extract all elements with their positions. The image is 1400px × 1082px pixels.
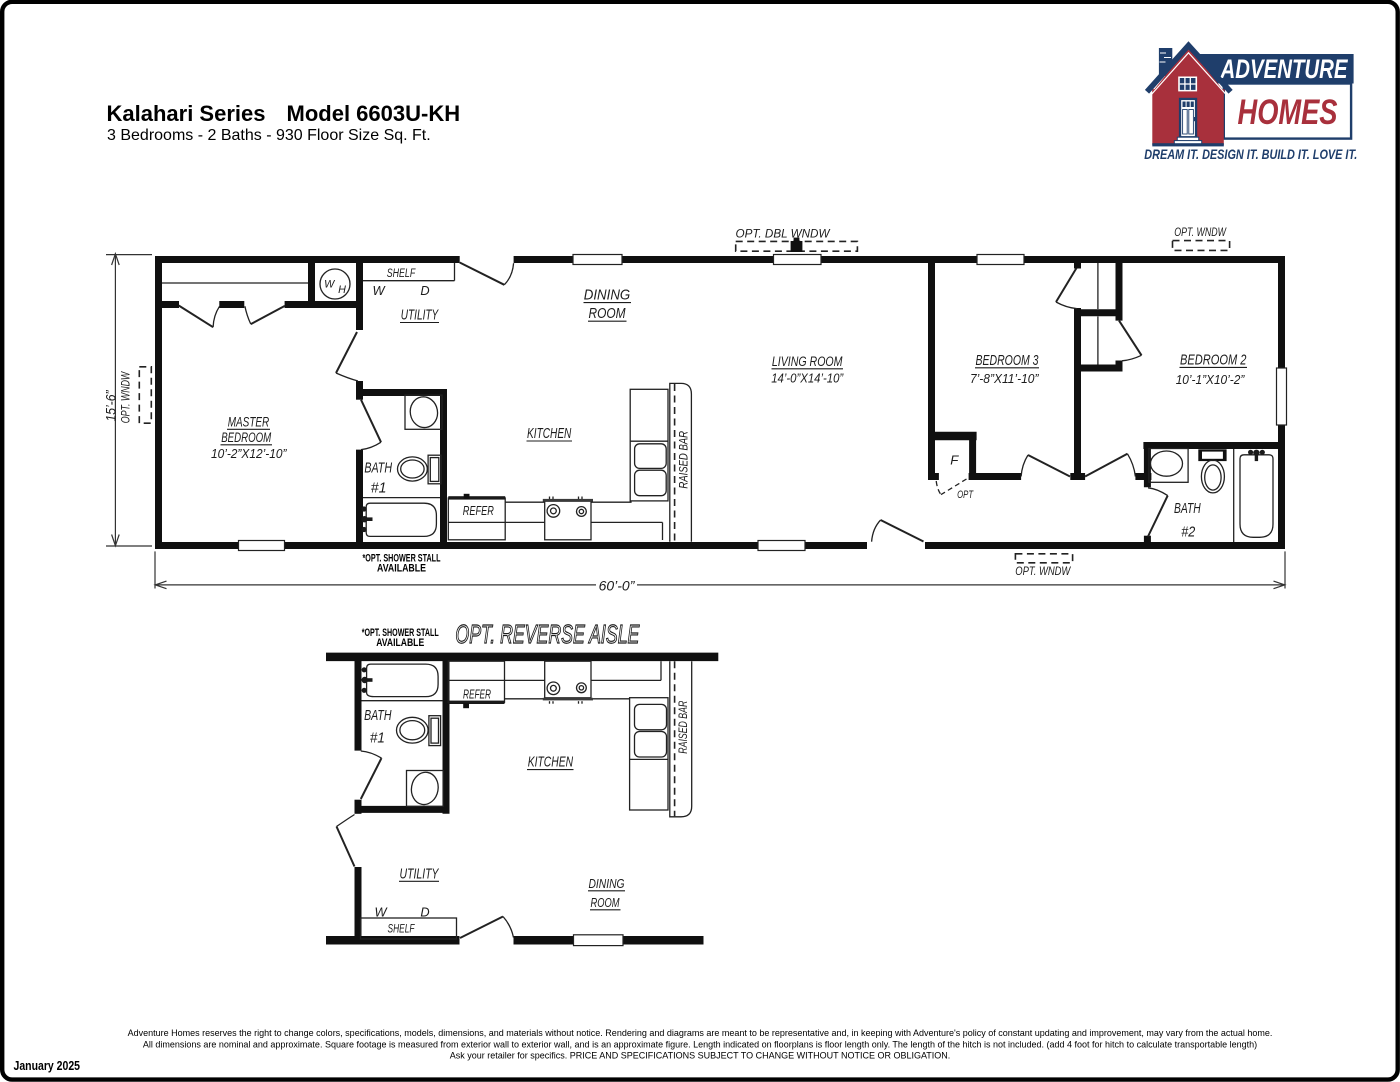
svg-text:BATH: BATH <box>1174 501 1201 517</box>
svg-text:3 Bedrooms - 2 Baths - 930 Flo: 3 Bedrooms - 2 Baths - 930 Floor Size Sq… <box>107 127 431 144</box>
svg-text:OPT. WNDW: OPT. WNDW <box>1015 564 1071 578</box>
svg-text:BEDROOM 3: BEDROOM 3 <box>976 353 1039 369</box>
svg-text:OPT. WNDW: OPT. WNDW <box>1174 225 1227 239</box>
svg-text:7’-8”X11’-10”: 7’-8”X11’-10” <box>970 371 1039 386</box>
svg-text:UTILITY: UTILITY <box>400 865 440 882</box>
svg-text:W: W <box>372 283 386 298</box>
svg-text:RAISED BAR: RAISED BAR <box>677 431 691 489</box>
svg-text:LIVING ROOM: LIVING ROOM <box>772 354 843 370</box>
svg-text:All dimensions are nominal and: All dimensions are nominal and approxima… <box>143 1040 1257 1050</box>
svg-text:BEDROOM: BEDROOM <box>221 430 271 446</box>
svg-text:W: W <box>374 904 388 919</box>
svg-text:SHELF: SHELF <box>387 266 417 280</box>
svg-text:DREAM IT. DESIGN IT. BUILD I: DREAM IT. DESIGN IT. BUILD IT. LOVE IT. <box>1144 147 1357 162</box>
svg-text:#1: #1 <box>370 731 385 747</box>
svg-text:D: D <box>420 904 429 919</box>
svg-text:OPT. REVERSE AISLE: OPT. REVERSE AISLE <box>455 619 639 649</box>
svg-text:ROOM: ROOM <box>591 895 620 910</box>
svg-text:W: W <box>324 279 336 291</box>
svg-text:F: F <box>950 453 959 468</box>
svg-text:BATH: BATH <box>364 708 392 724</box>
svg-text:REFER: REFER <box>463 687 491 702</box>
svg-text:#1: #1 <box>371 481 387 497</box>
svg-text:OPT: OPT <box>957 489 974 501</box>
svg-text:REFER: REFER <box>463 503 494 518</box>
svg-text:Kalahari Series: Kalahari Series <box>107 101 266 126</box>
svg-text:January 2025: January 2025 <box>14 1059 81 1073</box>
svg-text:AVAILABLE: AVAILABLE <box>377 562 426 574</box>
svg-text:UTILITY: UTILITY <box>401 306 439 323</box>
svg-text:BEDROOM 2: BEDROOM 2 <box>1180 352 1246 368</box>
svg-text:KITCHEN: KITCHEN <box>527 426 572 442</box>
svg-text:BATH: BATH <box>364 460 392 476</box>
svg-text:ADVENTURE: ADVENTURE <box>1220 54 1349 84</box>
svg-text:15’-6”: 15’-6” <box>104 390 119 421</box>
svg-text:DINING: DINING <box>589 876 625 891</box>
svg-text:OPT. WNDW: OPT. WNDW <box>119 371 133 424</box>
svg-text:OPT. DBL WNDW: OPT. DBL WNDW <box>736 226 831 240</box>
svg-text:Ask your retailer for specific: Ask your retailer for specifics. PRICE A… <box>450 1051 951 1061</box>
svg-text:H: H <box>338 284 346 296</box>
svg-text:60’-0”: 60’-0” <box>599 578 635 593</box>
svg-text:10’-2”X12’-10”: 10’-2”X12’-10” <box>211 446 287 461</box>
svg-text:10’-1”X10’-2”: 10’-1”X10’-2” <box>1176 372 1245 387</box>
svg-text:HOMES: HOMES <box>1238 93 1338 132</box>
svg-text:KITCHEN: KITCHEN <box>528 755 574 771</box>
svg-text:DINING: DINING <box>584 288 631 304</box>
svg-text:MASTER: MASTER <box>228 414 270 430</box>
svg-text:RAISED BAR: RAISED BAR <box>676 701 690 754</box>
svg-text:D: D <box>420 283 429 298</box>
svg-text:AVAILABLE: AVAILABLE <box>376 637 424 649</box>
svg-text:Adventure Homes reserves the r: Adventure Homes reserves the right to ch… <box>128 1028 1273 1038</box>
svg-text:14’-0”X14’-10”: 14’-0”X14’-10” <box>771 370 844 385</box>
svg-text:Model 6603U-KH: Model 6603U-KH <box>287 101 461 126</box>
svg-text:#2: #2 <box>1181 525 1195 541</box>
svg-text:ROOM: ROOM <box>589 306 627 322</box>
svg-text:SHELF: SHELF <box>388 921 416 935</box>
